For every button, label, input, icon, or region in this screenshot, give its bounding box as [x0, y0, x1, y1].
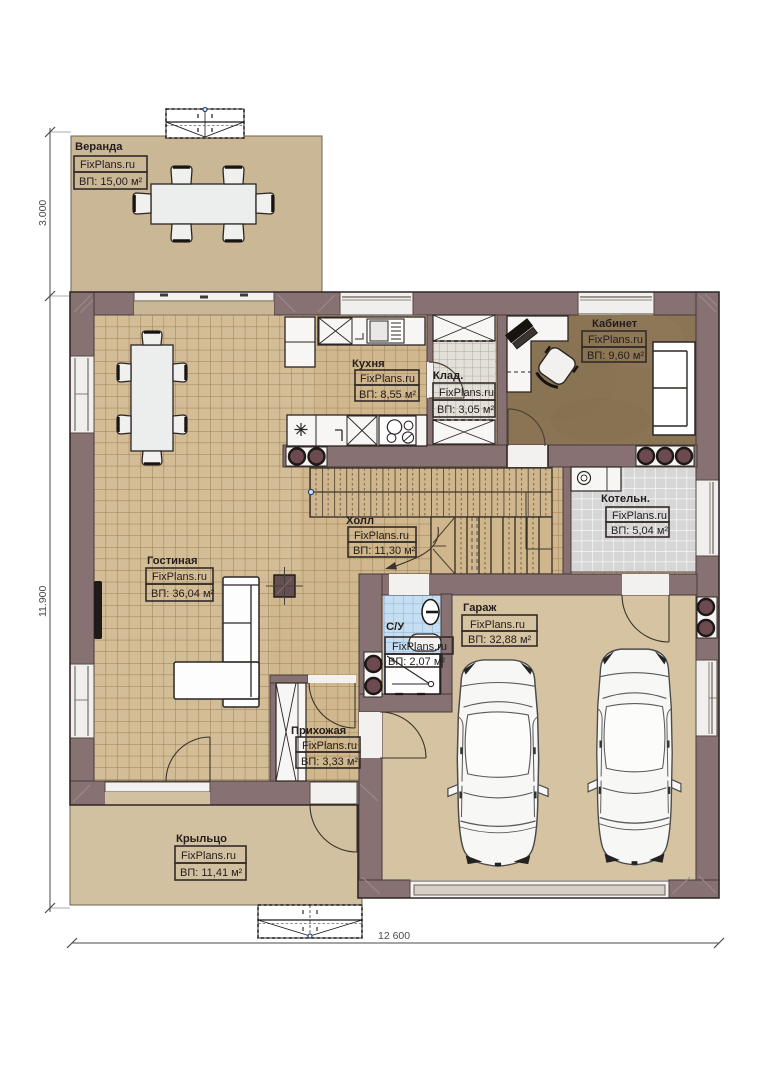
svg-text:ВП: 11,30 м²: ВП: 11,30 м²	[353, 545, 416, 557]
svg-text:ВП: 11,41 м²: ВП: 11,41 м²	[180, 867, 243, 879]
svg-text:ВП: 8,55 м²: ВП: 8,55 м²	[359, 389, 416, 401]
svg-text:FixPlans.ru: FixPlans.ru	[354, 530, 409, 542]
svg-text:Кабинет: Кабинет	[592, 318, 638, 330]
svg-text:ВП: 2,07 м²: ВП: 2,07 м²	[388, 656, 445, 668]
svg-text:Гостиная: Гостиная	[147, 555, 198, 567]
svg-text:FixPlans.ru: FixPlans.ru	[470, 619, 525, 631]
svg-text:FixPlans.ru: FixPlans.ru	[302, 740, 357, 752]
svg-text:Прихожая: Прихожая	[291, 725, 346, 737]
svg-text:12 600: 12 600	[378, 930, 410, 942]
svg-text:ВП: 3,05 м²: ВП: 3,05 м²	[437, 404, 494, 416]
svg-text:11.900: 11.900	[37, 586, 49, 617]
svg-text:Клад.: Клад.	[433, 370, 463, 382]
svg-text:3.000: 3.000	[37, 200, 49, 226]
svg-text:Крыльцо: Крыльцо	[176, 833, 227, 845]
svg-text:FixPlans.ru: FixPlans.ru	[612, 510, 667, 522]
svg-text:FixPlans.ru: FixPlans.ru	[80, 159, 135, 171]
svg-text:FixPlans.ru: FixPlans.ru	[439, 387, 494, 399]
svg-text:FixPlans.ru: FixPlans.ru	[152, 571, 207, 583]
svg-text:ВП: 32,88 м²: ВП: 32,88 м²	[468, 634, 532, 646]
svg-text:FixPlans.ru: FixPlans.ru	[360, 373, 415, 385]
svg-text:Холл: Холл	[346, 515, 374, 527]
svg-text:ВП: 5,04 м²: ВП: 5,04 м²	[611, 525, 668, 537]
svg-text:ВП: 3,33 м²: ВП: 3,33 м²	[301, 756, 358, 768]
svg-text:Гараж: Гараж	[463, 602, 497, 614]
svg-text:ВП: 36,04 м²: ВП: 36,04 м²	[151, 588, 215, 600]
svg-text:Котельн.: Котельн.	[601, 493, 650, 505]
svg-text:Веранда: Веранда	[75, 141, 123, 153]
svg-text:С/У: С/У	[386, 621, 405, 633]
svg-text:FixPlans.ru: FixPlans.ru	[181, 850, 236, 862]
svg-text:FixPlans.ru: FixPlans.ru	[588, 334, 643, 346]
svg-text:ВП: 9,60 м²: ВП: 9,60 м²	[587, 350, 644, 362]
svg-text:Кухня: Кухня	[352, 358, 385, 370]
svg-text:ВП: 15,00 м²: ВП: 15,00 м²	[79, 176, 143, 188]
svg-text:FixPlans.ru: FixPlans.ru	[392, 641, 447, 653]
